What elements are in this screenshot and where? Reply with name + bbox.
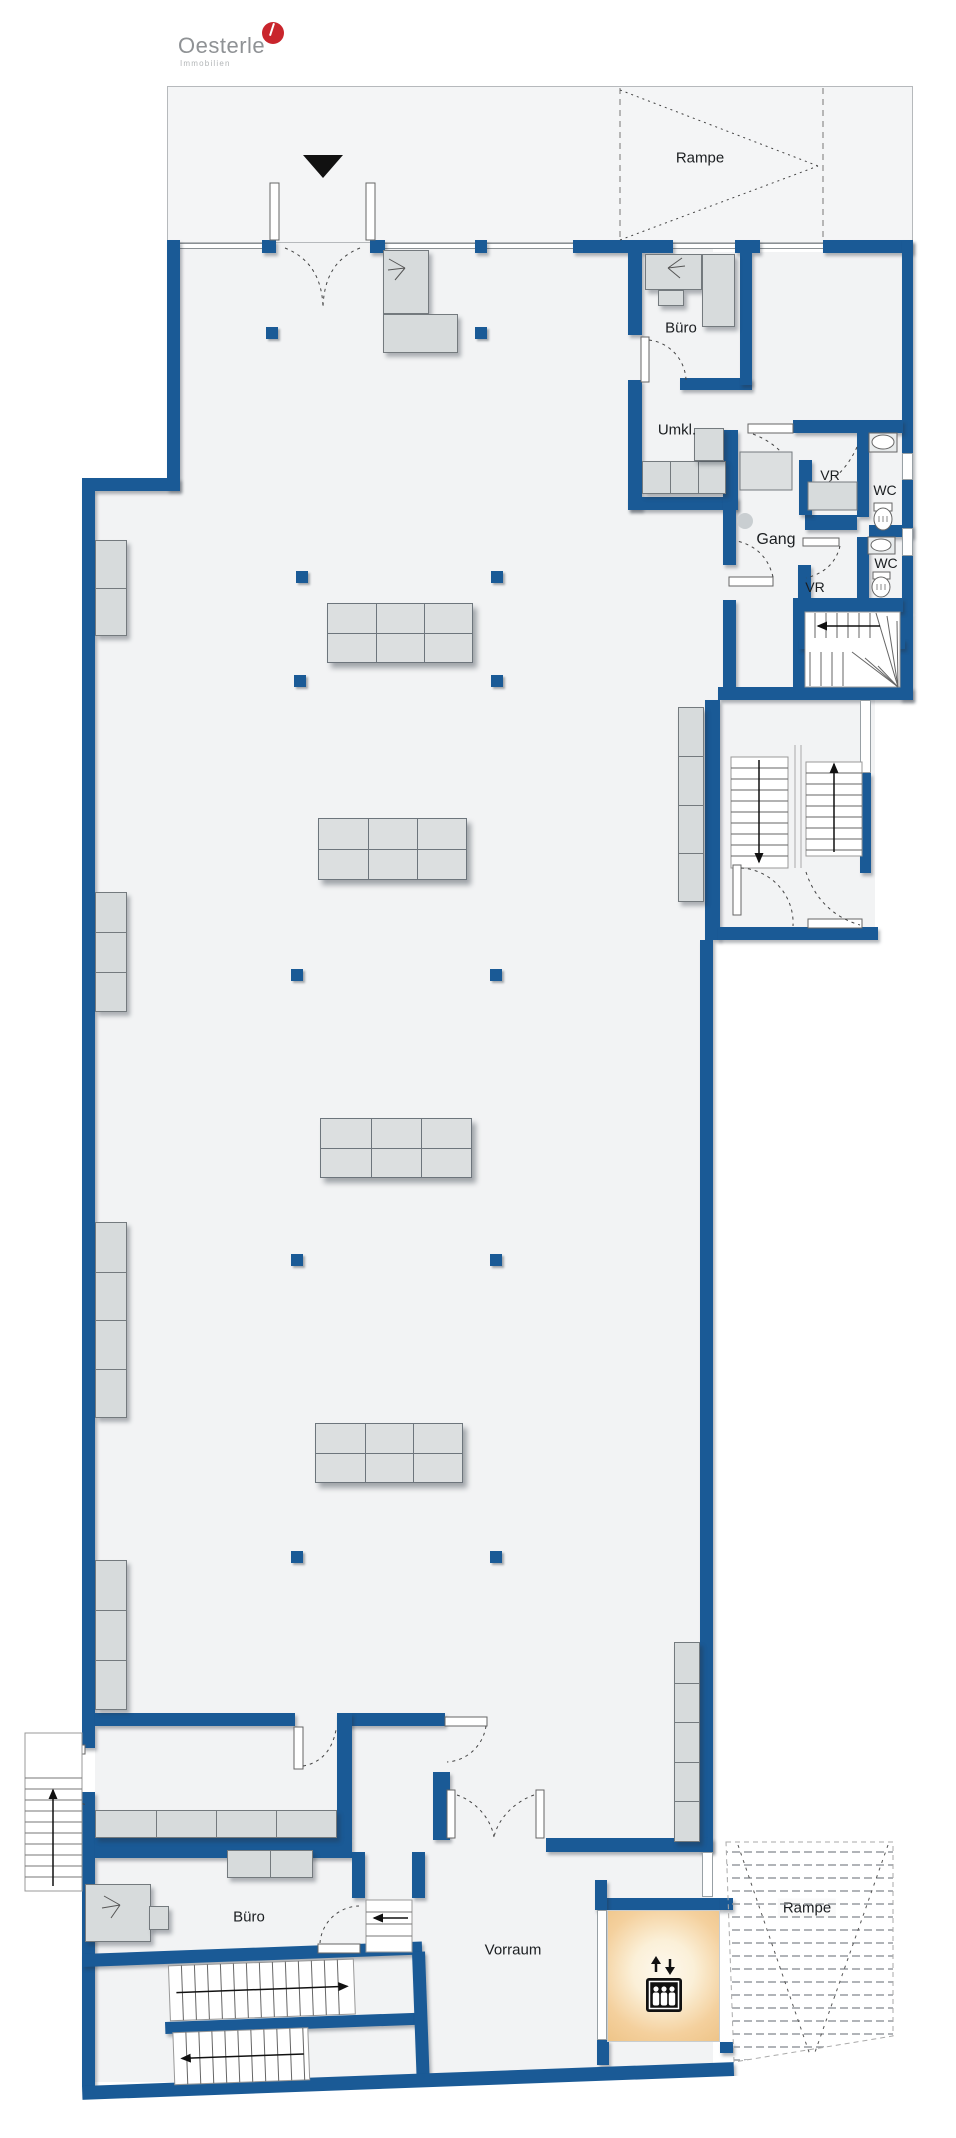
room-label-wc-upper: WC <box>873 482 896 498</box>
desk <box>85 1884 151 1942</box>
wall <box>167 240 180 490</box>
bench <box>694 428 724 461</box>
column <box>266 327 278 339</box>
wall <box>700 940 713 1852</box>
wall <box>262 240 276 253</box>
wall <box>95 1713 295 1726</box>
window <box>902 453 913 480</box>
column <box>294 675 306 687</box>
wall <box>82 490 95 1748</box>
hall-floor-left <box>95 490 180 1710</box>
window <box>902 528 913 556</box>
wall <box>823 240 913 253</box>
wall <box>628 252 642 335</box>
wall <box>337 1713 445 1726</box>
column <box>291 969 303 981</box>
wall <box>860 773 871 873</box>
desk <box>383 314 458 353</box>
logo-text: Oesterle <box>178 33 265 59</box>
round-column <box>737 513 753 529</box>
wall <box>793 612 805 687</box>
column <box>475 327 487 339</box>
wall <box>857 433 869 517</box>
wall <box>718 687 913 700</box>
chair <box>149 1906 169 1930</box>
shelf-rack <box>678 707 704 902</box>
room-label-umkl: Umkl. <box>658 422 696 439</box>
ramp-bottom-area <box>726 1842 893 2062</box>
wall <box>573 240 673 253</box>
desk <box>383 250 429 314</box>
chair <box>658 290 684 306</box>
shelf-rack <box>674 1642 700 1842</box>
bench <box>642 461 726 494</box>
window <box>860 700 871 773</box>
door-to-ramp <box>702 1852 713 1897</box>
floor-plan: Rampe Büro Umkl. VR WC Gang WC VR Büro V… <box>0 0 956 2138</box>
column <box>296 571 308 583</box>
wall <box>82 478 180 491</box>
stair-rail <box>799 639 905 649</box>
wall <box>793 598 903 612</box>
wall <box>720 1898 733 1910</box>
wall <box>433 1772 450 1840</box>
elevator-cell <box>607 1910 720 2042</box>
wall <box>723 510 736 565</box>
wall <box>705 700 720 940</box>
table-group <box>320 1118 472 1178</box>
shelf-rack <box>95 1222 127 1418</box>
exterior-staircase <box>25 1733 82 1891</box>
column <box>291 1551 303 1563</box>
window-band <box>487 243 573 249</box>
wall <box>337 1713 352 1838</box>
column <box>291 1254 303 1266</box>
logo-tagline: Immobilien <box>180 59 231 68</box>
table-group <box>327 603 473 663</box>
wall <box>597 2040 609 2065</box>
wall <box>723 600 736 687</box>
room-label-vr-upper: VR <box>820 467 839 483</box>
room-label-buero-bottom: Büro <box>233 1909 265 1926</box>
wall <box>628 380 642 510</box>
room-label-wc-lower: WC <box>874 555 897 571</box>
loading-yard-area <box>167 86 913 243</box>
shelf-rack <box>95 892 127 1012</box>
shelf-rack <box>95 1560 127 1710</box>
room-label-vorraum: Vorraum <box>485 1942 542 1959</box>
room-label-rampe-bottom: Rampe <box>778 1899 836 1918</box>
wall <box>793 420 903 433</box>
column <box>491 675 503 687</box>
wall <box>95 1838 352 1858</box>
room-label-rampe-top: Rampe <box>676 150 724 167</box>
wall <box>740 252 752 385</box>
shelf-rack <box>95 540 127 636</box>
cabinet-row <box>227 1850 313 1878</box>
window-band <box>385 243 475 249</box>
window-band <box>180 243 262 249</box>
wall <box>595 1880 607 1910</box>
desk <box>645 254 702 290</box>
column <box>491 571 503 583</box>
door-exterior-left <box>33 1745 88 1805</box>
table-group <box>315 1423 463 1483</box>
wall <box>475 240 487 253</box>
wall <box>597 1898 720 1910</box>
wall <box>720 2042 733 2053</box>
wall <box>352 1852 365 1898</box>
column <box>490 1551 502 1563</box>
elevator-door <box>597 1910 607 2040</box>
logo-red-dot-icon <box>262 22 284 44</box>
cabinet-row <box>95 1810 337 1838</box>
wall <box>412 1852 425 1898</box>
room-label-gang: Gang <box>756 531 795 549</box>
window-band <box>673 243 735 249</box>
column <box>490 969 502 981</box>
room-label-buero-top: Büro <box>665 320 697 337</box>
window-band <box>760 243 823 249</box>
table-group <box>318 818 467 880</box>
cabinet <box>702 254 735 327</box>
wall <box>902 240 913 612</box>
column <box>490 1254 502 1266</box>
wall <box>805 515 857 530</box>
wall <box>628 497 738 510</box>
stair-annex-floor <box>705 687 875 940</box>
wall <box>799 460 812 515</box>
room-label-vr-lower: VR <box>805 579 824 595</box>
wall <box>718 927 878 940</box>
